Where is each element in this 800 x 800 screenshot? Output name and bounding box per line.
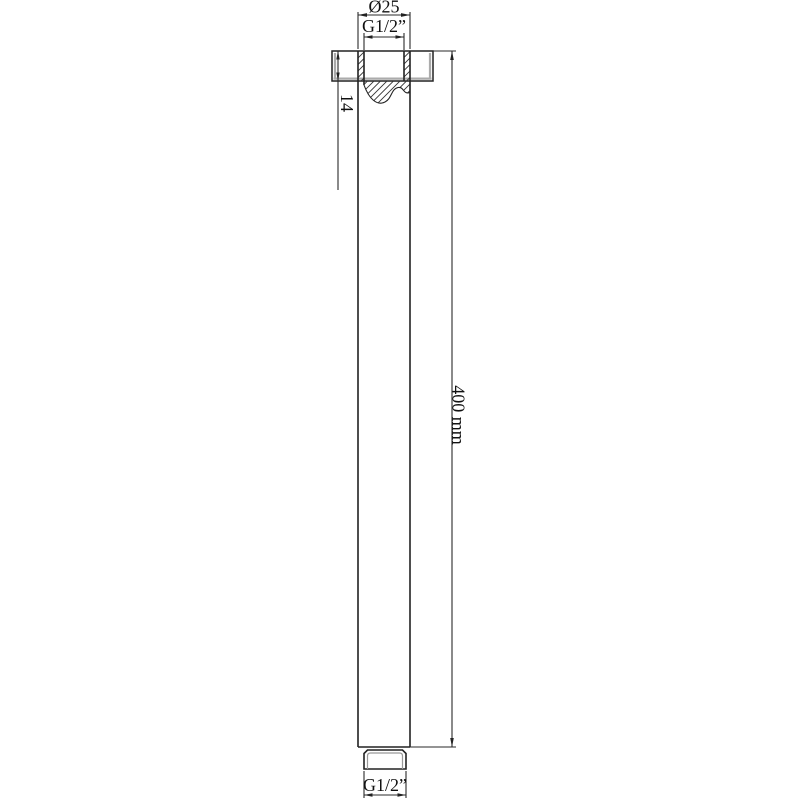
arrowhead-down-icon bbox=[450, 738, 454, 747]
arm-length-label: 400 mm bbox=[449, 385, 469, 445]
shower-arm-technical-drawing: Ø25 G1/2” 14 bbox=[0, 0, 800, 800]
bottom-thread-label: G1/2” bbox=[363, 775, 407, 795]
dimension-top-thread: G1/2” bbox=[362, 16, 406, 50]
neck-height-label: 14 bbox=[337, 94, 357, 112]
drawing-canvas: Ø25 G1/2” 14 bbox=[0, 0, 800, 800]
top-diameter-label: Ø25 bbox=[369, 0, 400, 17]
top-thread-label: G1/2” bbox=[362, 16, 406, 36]
breakout-section-hatch bbox=[364, 81, 410, 103]
arm-tube bbox=[358, 51, 410, 747]
dimension-arm-length: 400 mm bbox=[410, 51, 469, 747]
right-wall-section-hatch bbox=[404, 51, 410, 81]
left-wall-section-hatch bbox=[358, 51, 364, 81]
arrowhead-up-icon bbox=[450, 51, 454, 60]
flange-body bbox=[332, 51, 433, 81]
bottom-thread-end bbox=[364, 750, 406, 769]
dimension-bottom-thread: G1/2” bbox=[363, 771, 407, 798]
